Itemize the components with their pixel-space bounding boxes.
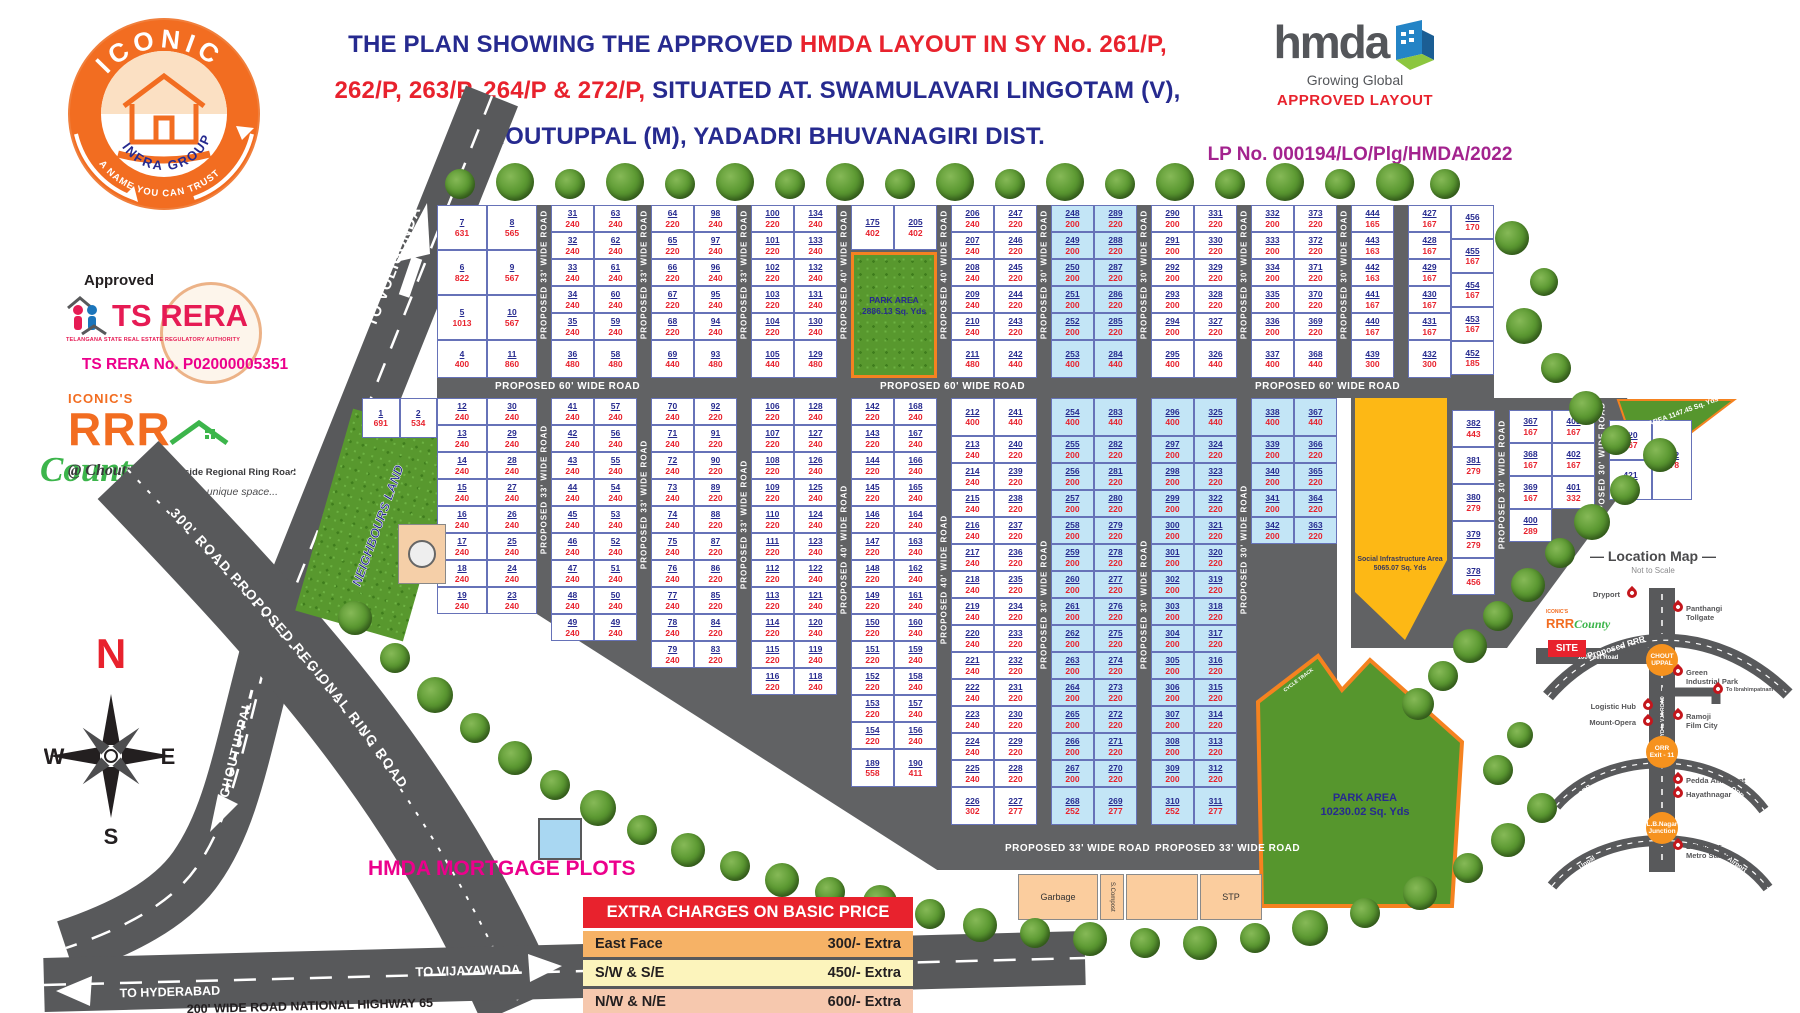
tree-icon bbox=[1046, 163, 1084, 201]
plot: 288220 bbox=[1094, 232, 1137, 259]
plot: 46240 bbox=[551, 533, 594, 560]
plot: 381279 bbox=[1452, 447, 1495, 484]
plot: 96240 bbox=[694, 259, 737, 286]
plot: 148220 bbox=[851, 560, 894, 587]
map-pin-icon bbox=[1671, 600, 1685, 614]
tree-icon bbox=[417, 677, 453, 713]
plot: 205402 bbox=[894, 205, 937, 250]
plot: 113220 bbox=[751, 587, 794, 614]
plot-block: 2482002492002502002512002522002534002892… bbox=[1051, 205, 1137, 378]
plot: 301200 bbox=[1151, 544, 1194, 571]
plot: 14240 bbox=[437, 452, 487, 479]
plot-block: 2124002132402142402152402162402172402182… bbox=[951, 398, 1037, 825]
plot: 129480 bbox=[794, 340, 837, 378]
plot: 287220 bbox=[1094, 259, 1137, 286]
tree-icon bbox=[1183, 926, 1217, 960]
plot: 372220 bbox=[1294, 232, 1337, 259]
plot-column: 1062201072201082201092201102201112201122… bbox=[751, 398, 794, 695]
plot: 271220 bbox=[1094, 733, 1137, 760]
map-stop-label: Dryport bbox=[1532, 590, 1620, 599]
plot: 118240 bbox=[794, 668, 837, 695]
plot: 272220 bbox=[1094, 706, 1137, 733]
plot: 168240 bbox=[894, 398, 937, 425]
plot-column: 2834402822202812202802202792202782202772… bbox=[1094, 398, 1137, 825]
road-label: PROPOSED 33' WIDE ROAD bbox=[640, 185, 649, 365]
plot: 263200 bbox=[1051, 652, 1094, 679]
road-label: PROPOSED 60' WIDE ROAD bbox=[880, 381, 1025, 392]
plot: 101220 bbox=[751, 232, 794, 259]
plot: 167240 bbox=[894, 425, 937, 452]
map-stop-label: Pedda Amberpet bbox=[1686, 776, 1786, 785]
plot: 222240 bbox=[951, 679, 994, 706]
tree-icon bbox=[580, 790, 616, 826]
plot: 248200 bbox=[1051, 205, 1094, 232]
plot-block: 444165443163442163441167440167439300 bbox=[1351, 205, 1394, 378]
plot: 28240 bbox=[487, 452, 537, 479]
plot: 325440 bbox=[1194, 398, 1237, 436]
plot: 19240 bbox=[437, 587, 487, 614]
iconic-logo: ICONIC INFRA GROUP A NAME YOU CAN TRUST bbox=[66, 16, 262, 212]
plot: 74240 bbox=[651, 506, 694, 533]
plot: 166240 bbox=[894, 452, 937, 479]
plot: 97240 bbox=[694, 232, 737, 259]
plot-plan: 7631682251013440085659567105671186031240… bbox=[0, 0, 1800, 1013]
plot: 269277 bbox=[1094, 787, 1137, 825]
plot: 143220 bbox=[851, 425, 894, 452]
plot: 338400 bbox=[1251, 398, 1294, 436]
svg-text:W: W bbox=[44, 744, 65, 769]
plot: 133240 bbox=[794, 232, 837, 259]
plot: 72240 bbox=[651, 452, 694, 479]
plot: 224240 bbox=[951, 733, 994, 760]
plot: 90220 bbox=[694, 452, 737, 479]
tree-icon bbox=[1215, 169, 1245, 199]
tree-icon bbox=[445, 169, 475, 199]
plot: 298200 bbox=[1151, 463, 1194, 490]
plot: 214240 bbox=[951, 463, 994, 490]
tree-icon bbox=[1020, 918, 1050, 948]
plot: 427167 bbox=[1408, 205, 1451, 232]
tree-icon bbox=[1403, 876, 1437, 910]
plot: 112220 bbox=[751, 560, 794, 587]
tree-icon bbox=[936, 163, 974, 201]
plot: 228220 bbox=[994, 760, 1037, 787]
plot: 334200 bbox=[1251, 259, 1294, 286]
plot: 11860 bbox=[487, 340, 537, 378]
plot: 293200 bbox=[1151, 286, 1194, 313]
plot: 35240 bbox=[551, 313, 594, 340]
plot: 280220 bbox=[1094, 490, 1137, 517]
plot: 237220 bbox=[994, 517, 1037, 544]
plot-block: 427167428167429167430167431167432300 bbox=[1408, 205, 1451, 378]
plot: 274220 bbox=[1094, 652, 1137, 679]
plot: 213240 bbox=[951, 436, 994, 463]
plot: 453167 bbox=[1451, 307, 1494, 341]
plot: 400289 bbox=[1509, 509, 1552, 542]
plot: 303200 bbox=[1151, 598, 1194, 625]
plot: 146220 bbox=[851, 506, 894, 533]
plot: 15240 bbox=[437, 479, 487, 506]
plot: 147220 bbox=[851, 533, 894, 560]
plot: 296400 bbox=[1151, 398, 1194, 436]
plot: 255200 bbox=[1051, 436, 1094, 463]
plot-column: 206240207240208240209240210240211480 bbox=[951, 205, 994, 378]
plot: 105440 bbox=[751, 340, 794, 378]
plot: 78240 bbox=[651, 614, 694, 641]
plot: 210240 bbox=[951, 313, 994, 340]
plot: 380279 bbox=[1452, 484, 1495, 521]
plot: 308200 bbox=[1151, 733, 1194, 760]
plot-block: 382443381279380279379279378456 bbox=[1452, 410, 1495, 595]
plot: 297200 bbox=[1151, 436, 1194, 463]
tree-icon bbox=[1240, 923, 1270, 953]
road-label: PROPOSED 40' WIDE ROAD bbox=[940, 185, 949, 365]
road-label: PROPOSED 33' WIDE ROAD bbox=[540, 400, 549, 580]
extra-charges-row: N/W & N/E600/- Extra bbox=[583, 989, 913, 1013]
plot: 430167 bbox=[1408, 286, 1451, 313]
plot: 341200 bbox=[1251, 490, 1294, 517]
sia-label: Social Infrastructure Area5065.07 Sq. Yd… bbox=[1352, 556, 1448, 574]
plot-column: 2544002552002562002572002582002592002602… bbox=[1051, 398, 1094, 825]
tree-icon bbox=[1491, 823, 1525, 857]
plot: 25240 bbox=[487, 533, 537, 560]
plot: 24240 bbox=[487, 560, 537, 587]
plot: 104220 bbox=[751, 313, 794, 340]
layout-poster: TO VOLIGONDA 100' WIDE ROAD 300' ROAD PR… bbox=[0, 0, 1800, 1013]
tree-icon bbox=[1073, 922, 1107, 956]
plot: 77240 bbox=[651, 587, 694, 614]
plot: 116220 bbox=[751, 668, 794, 695]
plot: 165240 bbox=[894, 479, 937, 506]
tree-icon bbox=[1130, 928, 1160, 958]
plot: 240220 bbox=[994, 436, 1037, 463]
plot: 429167 bbox=[1408, 259, 1451, 286]
plot: 108220 bbox=[751, 452, 794, 479]
plot: 227277 bbox=[994, 787, 1037, 825]
plot: 103220 bbox=[751, 286, 794, 313]
plot: 89220 bbox=[694, 479, 737, 506]
plot-column: 290200291200292200293200294200295400 bbox=[1151, 205, 1194, 378]
map-pin-icon bbox=[1671, 708, 1685, 722]
plot-block: 456170455167454167453167452185 bbox=[1451, 205, 1494, 375]
svg-text:N: N bbox=[96, 630, 126, 677]
extra-charges-header: EXTRA CHARGES ON BASIC PRICE bbox=[583, 897, 913, 928]
plot: 245220 bbox=[994, 259, 1037, 286]
road-label: PROPOSED 30' WIDE ROAD bbox=[1240, 460, 1249, 640]
plot: 229220 bbox=[994, 733, 1037, 760]
plot-block: 16912534 bbox=[362, 398, 437, 438]
plot: 151220 bbox=[851, 641, 894, 668]
plot: 307200 bbox=[1151, 706, 1194, 733]
plot: 304200 bbox=[1151, 625, 1194, 652]
plot-block: 7024071240722407324074240752407624077240… bbox=[651, 398, 737, 668]
plot-column: 856595671056711860 bbox=[487, 205, 537, 378]
plot: 111220 bbox=[751, 533, 794, 560]
plot: 242440 bbox=[994, 340, 1037, 378]
plot: 88220 bbox=[694, 506, 737, 533]
plot: 57240 bbox=[594, 398, 637, 425]
plot: 270220 bbox=[1094, 760, 1137, 787]
tree-icon bbox=[338, 601, 372, 635]
plot: 371220 bbox=[1294, 259, 1337, 286]
plot: 156240 bbox=[894, 722, 937, 749]
plot: 102220 bbox=[751, 259, 794, 286]
plot: 256200 bbox=[1051, 463, 1094, 490]
plot: 241440 bbox=[994, 398, 1037, 436]
plot: 29240 bbox=[487, 425, 537, 452]
plot: 217240 bbox=[951, 544, 994, 571]
plot: 253400 bbox=[1051, 340, 1094, 378]
plot: 300200 bbox=[1151, 517, 1194, 544]
plot-block: 76316822510134400856595671056711860 bbox=[437, 205, 537, 378]
plot: 258200 bbox=[1051, 517, 1094, 544]
tree-icon bbox=[716, 163, 754, 201]
plot: 12240 bbox=[437, 398, 487, 425]
plot: 313220 bbox=[1194, 733, 1237, 760]
road-label: PROPOSED 33' WIDE ROAD bbox=[1005, 843, 1150, 854]
plot: 219240 bbox=[951, 598, 994, 625]
plot: 149220 bbox=[851, 587, 894, 614]
plot: 333200 bbox=[1251, 232, 1294, 259]
tree-icon bbox=[671, 833, 705, 867]
plot: 59240 bbox=[594, 313, 637, 340]
road-label: PROPOSED 33' WIDE ROAD bbox=[1155, 843, 1300, 854]
tree-icon bbox=[915, 899, 945, 929]
tree-icon bbox=[606, 163, 644, 201]
tree-icon bbox=[380, 643, 410, 673]
plot: 234220 bbox=[994, 598, 1037, 625]
plot: 56240 bbox=[594, 425, 637, 452]
plot: 317220 bbox=[1194, 625, 1237, 652]
location-map-title: — Location Map — bbox=[1588, 548, 1718, 564]
map-stop-label: To Ibrahimpatnam Road bbox=[1726, 686, 1800, 695]
plot-column: 312403224033240342403524036480 bbox=[551, 205, 594, 378]
plot: 109220 bbox=[751, 479, 794, 506]
plot: 70240 bbox=[651, 398, 694, 425]
plot: 378456 bbox=[1452, 558, 1495, 595]
plot: 49240 bbox=[551, 614, 594, 641]
plot: 315220 bbox=[1194, 679, 1237, 706]
svg-text:S: S bbox=[104, 824, 119, 849]
map-stop-label: Logistic Hub bbox=[1548, 702, 1636, 711]
plot-column: 5724056240552405424053240522405124050240… bbox=[594, 398, 637, 641]
plot-block: 2902002912002922002932002942002954003312… bbox=[1151, 205, 1237, 378]
extra-charges-row: S/W & S/E450/- Extra bbox=[583, 960, 913, 986]
map-stop-label: Mount-Opera bbox=[1548, 718, 1636, 727]
plot: 85220 bbox=[694, 587, 737, 614]
plot: 268252 bbox=[1051, 787, 1094, 825]
plot-column: 332200333200334200335200336200337400 bbox=[1251, 205, 1294, 378]
plot: 68220 bbox=[651, 313, 694, 340]
plot: 232220 bbox=[994, 652, 1037, 679]
plot: 51013 bbox=[437, 295, 487, 340]
plot-column: 4124042240432404424045240462404724048240… bbox=[551, 398, 594, 641]
road-label: PROPOSED 40' WIDE ROAD bbox=[940, 490, 949, 670]
plot-column: 76316822510134400 bbox=[437, 205, 487, 378]
plot: 309200 bbox=[1151, 760, 1194, 787]
plot: 7631 bbox=[437, 205, 487, 250]
plot: 98240 bbox=[694, 205, 737, 232]
tree-icon bbox=[1376, 163, 1414, 201]
tree-icon bbox=[1156, 163, 1194, 201]
road-label: PROPOSED 30' WIDE ROAD bbox=[1140, 185, 1149, 365]
plot: 60240 bbox=[594, 286, 637, 313]
plot: 157240 bbox=[894, 695, 937, 722]
plot: 71240 bbox=[651, 425, 694, 452]
tree-icon bbox=[1506, 308, 1542, 344]
tree-icon bbox=[1453, 853, 1483, 883]
plot: 323220 bbox=[1194, 463, 1237, 490]
plot: 249200 bbox=[1051, 232, 1094, 259]
plot: 440167 bbox=[1351, 313, 1394, 340]
plot: 283440 bbox=[1094, 398, 1137, 436]
oht-circle-icon bbox=[408, 540, 436, 568]
map-stop-label: L.B.NagarMetro Station bbox=[1686, 842, 1786, 860]
plot: 100220 bbox=[751, 205, 794, 232]
plot: 432300 bbox=[1408, 340, 1451, 378]
plot: 163240 bbox=[894, 533, 937, 560]
plot: 230220 bbox=[994, 706, 1037, 733]
plot: 443163 bbox=[1351, 232, 1394, 259]
plot: 121240 bbox=[794, 587, 837, 614]
plot: 62240 bbox=[594, 232, 637, 259]
plot: 91220 bbox=[694, 425, 737, 452]
plot: 455167 bbox=[1451, 239, 1494, 273]
road-label: PROPOSED 30' WIDE ROAD bbox=[1140, 515, 1149, 695]
tree-icon bbox=[1428, 661, 1458, 691]
plot: 75240 bbox=[651, 533, 694, 560]
plot: 251200 bbox=[1051, 286, 1094, 313]
plot: 65220 bbox=[651, 232, 694, 259]
plot: 254400 bbox=[1051, 398, 1094, 436]
tree-icon bbox=[885, 169, 915, 199]
plot: 128240 bbox=[794, 398, 837, 425]
plot-block: 3124032240332403424035240364806324062240… bbox=[551, 205, 637, 378]
plot-column: 2414402402202392202382202372202362202352… bbox=[994, 398, 1037, 825]
road-label: PROPOSED 30' WIDE ROAD bbox=[1498, 395, 1507, 575]
plot-block: 2544002552002562002572002582002592002602… bbox=[1051, 398, 1137, 825]
plot: 36480 bbox=[551, 340, 594, 378]
utility-box: Garbage bbox=[1018, 874, 1098, 920]
road-label: PROPOSED 30' WIDE ROAD bbox=[1340, 185, 1349, 365]
plot: 231220 bbox=[994, 679, 1037, 706]
plot: 316220 bbox=[1194, 652, 1237, 679]
map-town-node: L.B.NagarJunction bbox=[1646, 812, 1678, 844]
plot: 259200 bbox=[1051, 544, 1094, 571]
location-map-subtitle: Not to Scale bbox=[1588, 566, 1718, 575]
tree-icon bbox=[765, 863, 799, 897]
map-pin-icon bbox=[1641, 714, 1655, 728]
plot: 266200 bbox=[1051, 733, 1094, 760]
plot: 312220 bbox=[1194, 760, 1237, 787]
plot: 34240 bbox=[551, 286, 594, 313]
plot-column: 9222091220902208922088220872208622085220… bbox=[694, 398, 737, 668]
map-stop-label: RamojiFilm City bbox=[1686, 712, 1786, 730]
plot: 454167 bbox=[1451, 273, 1494, 307]
plot: 93480 bbox=[694, 340, 737, 378]
plot: 58480 bbox=[594, 340, 637, 378]
plot-column: 205402 bbox=[894, 205, 937, 250]
plot: 51240 bbox=[594, 560, 637, 587]
plot: 444165 bbox=[1351, 205, 1394, 232]
plot: 235220 bbox=[994, 571, 1037, 598]
map-pin-icon bbox=[1641, 698, 1655, 712]
plot: 339200 bbox=[1251, 436, 1294, 463]
plot-column: 982409724096240952409424093480 bbox=[694, 205, 737, 378]
plot: 2534 bbox=[400, 398, 438, 438]
plot: 264200 bbox=[1051, 679, 1094, 706]
tree-icon bbox=[720, 851, 750, 881]
tree-icon bbox=[1569, 391, 1603, 425]
plot: 208240 bbox=[951, 259, 994, 286]
plot: 132240 bbox=[794, 259, 837, 286]
plot: 4400 bbox=[437, 340, 487, 378]
plot: 150220 bbox=[851, 614, 894, 641]
tree-icon bbox=[963, 908, 997, 942]
plot-column: 367167368167369167400289 bbox=[1509, 410, 1552, 542]
tree-icon bbox=[1325, 169, 1355, 199]
tree-icon bbox=[1483, 601, 1513, 631]
tree-icon bbox=[1453, 629, 1487, 663]
plot: 152220 bbox=[851, 668, 894, 695]
plot: 162240 bbox=[894, 560, 937, 587]
plot: 452185 bbox=[1451, 341, 1494, 375]
park-area-2886-label: PARK AREA2886.13 Sq. Yds bbox=[851, 295, 937, 316]
plot: 218240 bbox=[951, 571, 994, 598]
plot: 66220 bbox=[651, 259, 694, 286]
plot-column: 373220372220371220370220369220368440 bbox=[1294, 205, 1337, 378]
map-town-node: ORRExit - 11 bbox=[1646, 736, 1678, 768]
plot: 54240 bbox=[594, 479, 637, 506]
plot: 369220 bbox=[1294, 313, 1337, 340]
mortgage-legend-swatch bbox=[538, 818, 582, 860]
plot: 363220 bbox=[1294, 517, 1337, 544]
tree-icon bbox=[1105, 169, 1135, 199]
plot: 273220 bbox=[1094, 679, 1137, 706]
plot: 26240 bbox=[487, 506, 537, 533]
plot: 123240 bbox=[794, 533, 837, 560]
plot-column: 1682401672401662401652401642401632401622… bbox=[894, 398, 937, 787]
plot: 107220 bbox=[751, 425, 794, 452]
plot: 276220 bbox=[1094, 598, 1137, 625]
road-label: PROPOSED 40' WIDE ROAD bbox=[840, 185, 849, 365]
mini-rrr-logo: ICONIC'S RRRCounty bbox=[1546, 606, 1636, 630]
plot: 130240 bbox=[794, 313, 837, 340]
plot: 216240 bbox=[951, 517, 994, 544]
road-label: PROPOSED 33' WIDE ROAD bbox=[740, 185, 749, 365]
plot: 134240 bbox=[794, 205, 837, 232]
plot-column: 367440366220365220364220363220 bbox=[1294, 398, 1337, 544]
plot: 322220 bbox=[1194, 490, 1237, 517]
plot-column: 1282401272401262401252401242401232401222… bbox=[794, 398, 837, 695]
plot: 126240 bbox=[794, 452, 837, 479]
tree-icon bbox=[1530, 268, 1558, 296]
plot-column: 248200249200250200251200252200253400 bbox=[1051, 205, 1094, 378]
tree-icon bbox=[1402, 688, 1434, 720]
plot: 291200 bbox=[1151, 232, 1194, 259]
plot: 365220 bbox=[1294, 463, 1337, 490]
tree-icon bbox=[1610, 475, 1640, 505]
compass-icon: N W E S bbox=[44, 616, 178, 856]
plot: 30240 bbox=[487, 398, 537, 425]
tree-icon bbox=[665, 169, 695, 199]
plot: 127240 bbox=[794, 425, 837, 452]
tree-icon bbox=[1430, 169, 1460, 199]
plot: 215240 bbox=[951, 490, 994, 517]
plot: 290200 bbox=[1151, 205, 1194, 232]
tree-icon bbox=[775, 169, 805, 199]
plot-block: 2964002972002982002992003002003012003022… bbox=[1151, 398, 1237, 825]
